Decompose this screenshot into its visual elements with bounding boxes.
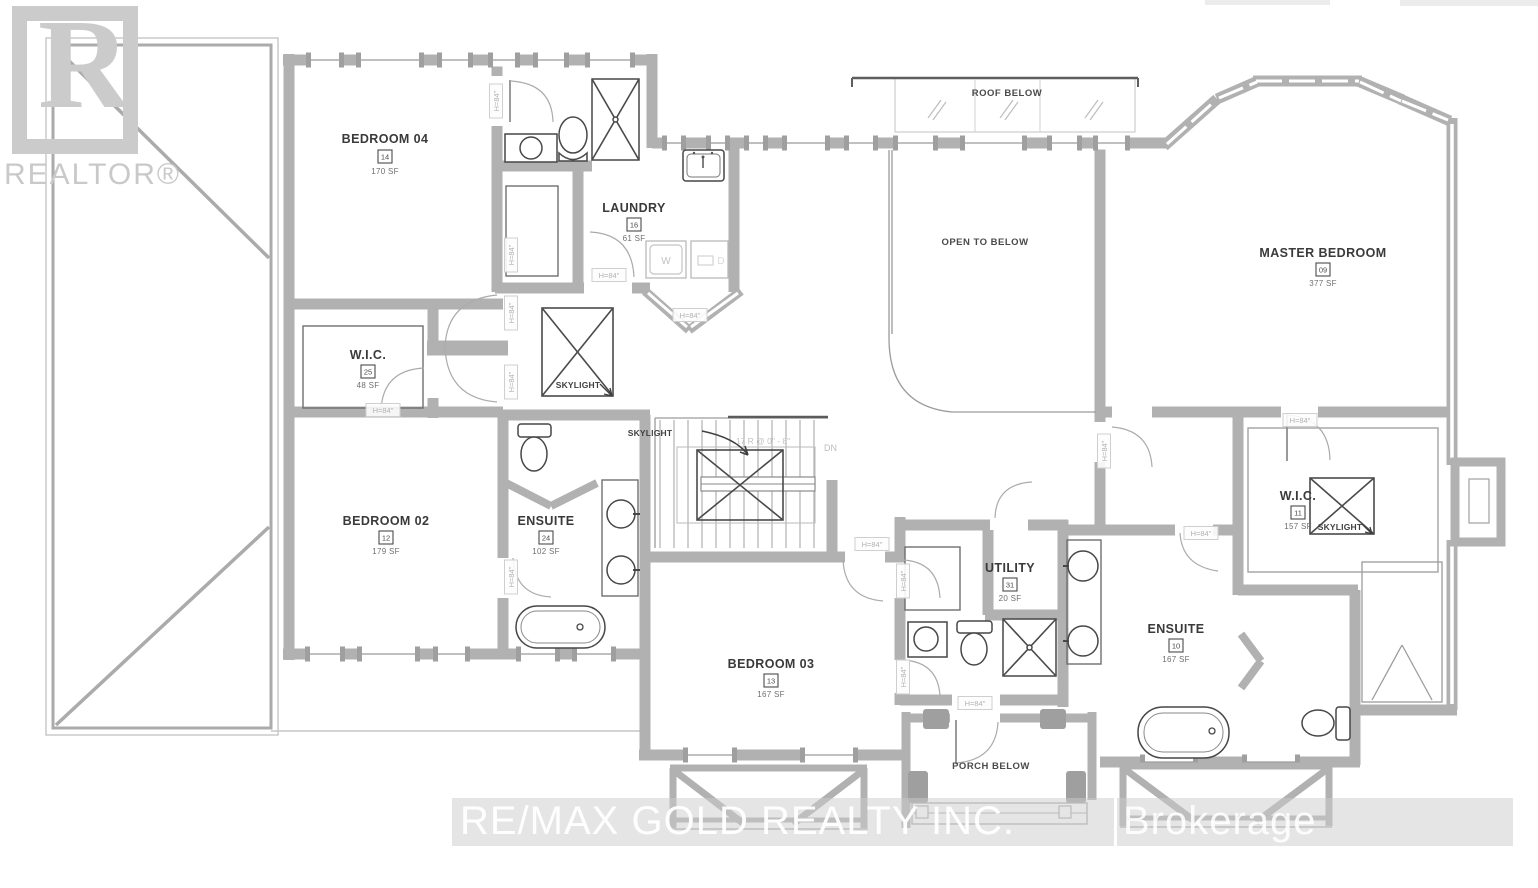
realtor-wordmark: REALTOR®	[4, 158, 181, 192]
room-label-bedroom-02: BEDROOM 02 12 179 SF	[343, 514, 430, 556]
room-label-ensuite-24: ENSUITE 24 102 SF	[518, 514, 575, 556]
porch-below-label: PORCH BELOW	[952, 761, 1030, 772]
walls	[283, 54, 1457, 828]
bathtub	[516, 606, 605, 648]
svg-text:09: 09	[1319, 266, 1327, 275]
svg-text:H=84": H=84"	[1191, 529, 1212, 538]
svg-text:31: 31	[1006, 581, 1014, 590]
door-height-tag: H=84"	[505, 296, 518, 330]
dryer: D	[691, 241, 728, 278]
skylight-label: SKYLIGHT	[628, 428, 673, 438]
door-height-tag: H=84"	[855, 538, 889, 551]
svg-text:61 SF: 61 SF	[623, 234, 646, 243]
skylight-label: SKYLIGHT	[556, 380, 601, 390]
svg-text:UTILITY: UTILITY	[985, 561, 1035, 575]
door-height-tag: H=84"	[490, 84, 503, 118]
svg-text:157 SF: 157 SF	[1284, 522, 1312, 531]
door-height-tags: H=84" H=84" H=84" H=84" H=84" H=84" H=84…	[366, 84, 1317, 710]
open-to-below-label: OPEN TO BELOW	[941, 237, 1028, 248]
toilet	[559, 117, 587, 161]
skylight-label: SKYLIGHT	[1318, 522, 1363, 532]
scan-artifact	[1205, 0, 1330, 5]
shower	[1003, 619, 1056, 676]
room-label-master-bedroom: MASTER BEDROOM 09 377 SF	[1259, 246, 1386, 288]
svg-text:167 SF: 167 SF	[757, 690, 785, 699]
svg-text:W.I.C.: W.I.C.	[1280, 489, 1316, 503]
washer-label: W	[661, 256, 671, 267]
svg-text:H=84": H=84"	[1290, 416, 1311, 425]
roof-below-glazing	[852, 78, 1138, 132]
svg-text:W.I.C.: W.I.C.	[350, 348, 386, 362]
skylight-wic: SKYLIGHT	[1310, 478, 1374, 534]
svg-text:170 SF: 170 SF	[371, 167, 399, 176]
svg-text:48 SF: 48 SF	[357, 381, 380, 390]
toilet	[518, 424, 551, 471]
svg-text:377 SF: 377 SF	[1309, 279, 1337, 288]
brokerage-watermark-suffix: Brokerage	[1117, 798, 1513, 846]
door-height-tag: H=84"	[1184, 527, 1218, 540]
skylights: SKYLIGHT SKYLIGHT SKYLIGHT	[542, 308, 1374, 534]
svg-text:ENSUITE: ENSUITE	[518, 514, 575, 528]
door-height-tag: H=84"	[505, 560, 518, 594]
svg-text:10: 10	[1172, 642, 1180, 651]
svg-text:H=84": H=84"	[507, 566, 516, 587]
realtor-logo-letter: R	[38, 0, 130, 142]
door-height-tag: H=84"	[673, 309, 707, 322]
svg-text:MASTER BEDROOM: MASTER BEDROOM	[1259, 246, 1386, 260]
svg-text:167 SF: 167 SF	[1162, 655, 1190, 664]
svg-text:25: 25	[364, 368, 372, 377]
svg-text:H=84": H=84"	[599, 271, 620, 280]
floor-plan-page: W D	[0, 0, 1538, 888]
toilet	[957, 621, 992, 665]
svg-text:24: 24	[542, 534, 550, 543]
svg-text:BEDROOM 04: BEDROOM 04	[342, 132, 429, 146]
svg-text:H=84": H=84"	[899, 570, 908, 591]
chimney	[1455, 462, 1501, 542]
bathtub	[1138, 707, 1229, 758]
door-height-tag: H=84"	[897, 660, 910, 694]
svg-text:14: 14	[381, 153, 389, 162]
room-label-bedroom-04: BEDROOM 04 14 170 SF	[342, 132, 429, 176]
svg-text:H=84": H=84"	[492, 90, 501, 111]
svg-text:LAUNDRY: LAUNDRY	[602, 201, 666, 215]
svg-text:102 SF: 102 SF	[532, 547, 560, 556]
svg-text:H=84": H=84"	[507, 371, 516, 392]
svg-text:ENSUITE: ENSUITE	[1148, 622, 1205, 636]
roof-below-label: ROOF BELOW	[972, 88, 1042, 99]
svg-text:H=84": H=84"	[1100, 440, 1109, 461]
door-height-tag: H=84"	[505, 365, 518, 399]
door-height-tag: H=84"	[958, 697, 992, 710]
svg-text:11: 11	[1294, 509, 1302, 518]
svg-text:H=84": H=84"	[507, 244, 516, 265]
down-label: DN	[824, 443, 837, 453]
bathroom-vanity	[505, 134, 557, 162]
door-height-tag: H=84"	[505, 238, 518, 272]
svg-text:179 SF: 179 SF	[372, 547, 400, 556]
svg-text:13: 13	[767, 677, 775, 686]
laundry-sink	[683, 150, 724, 181]
svg-text:H=84": H=84"	[373, 406, 394, 415]
realtor-logo: R	[12, 6, 162, 158]
door-height-tag: H=84"	[366, 404, 400, 417]
svg-text:H=84": H=84"	[965, 699, 986, 708]
door-height-tag: H=84"	[1098, 434, 1111, 468]
svg-text:12: 12	[382, 534, 390, 543]
svg-text:20 SF: 20 SF	[999, 594, 1022, 603]
brokerage-watermark-main: RE/MAX GOLD REALTY INC.	[452, 798, 1114, 846]
washer: W	[646, 241, 686, 278]
svg-text:BEDROOM 02: BEDROOM 02	[343, 514, 430, 528]
room-label-wic-25: W.I.C. 25 48 SF	[350, 348, 386, 390]
toilet	[1302, 707, 1350, 740]
double-sinks	[607, 500, 640, 584]
svg-text:BEDROOM 03: BEDROOM 03	[728, 657, 815, 671]
floor-plan-drawing: W D	[0, 0, 1538, 888]
door-height-tag: H=84"	[897, 564, 910, 598]
bathroom-vanity	[908, 622, 947, 657]
svg-text:H=84": H=84"	[507, 302, 516, 323]
scan-artifact	[1400, 0, 1538, 6]
svg-text:16: 16	[630, 221, 638, 230]
dryer-label: D	[717, 256, 724, 267]
skylight-hall: SKYLIGHT	[542, 308, 613, 396]
shower	[592, 79, 639, 160]
door-height-tag: H=84"	[1283, 414, 1317, 427]
svg-text:H=84": H=84"	[862, 540, 883, 549]
room-label-ensuite-10: ENSUITE 10 167 SF	[1148, 622, 1205, 664]
door-height-tag: H=84"	[592, 269, 626, 282]
room-label-bedroom-03: BEDROOM 03 13 167 SF	[728, 657, 815, 699]
svg-text:H=84": H=84"	[680, 311, 701, 320]
svg-text:H=84": H=84"	[899, 666, 908, 687]
stair-riser-note: 17 R @ 0" - 8"	[736, 436, 790, 446]
